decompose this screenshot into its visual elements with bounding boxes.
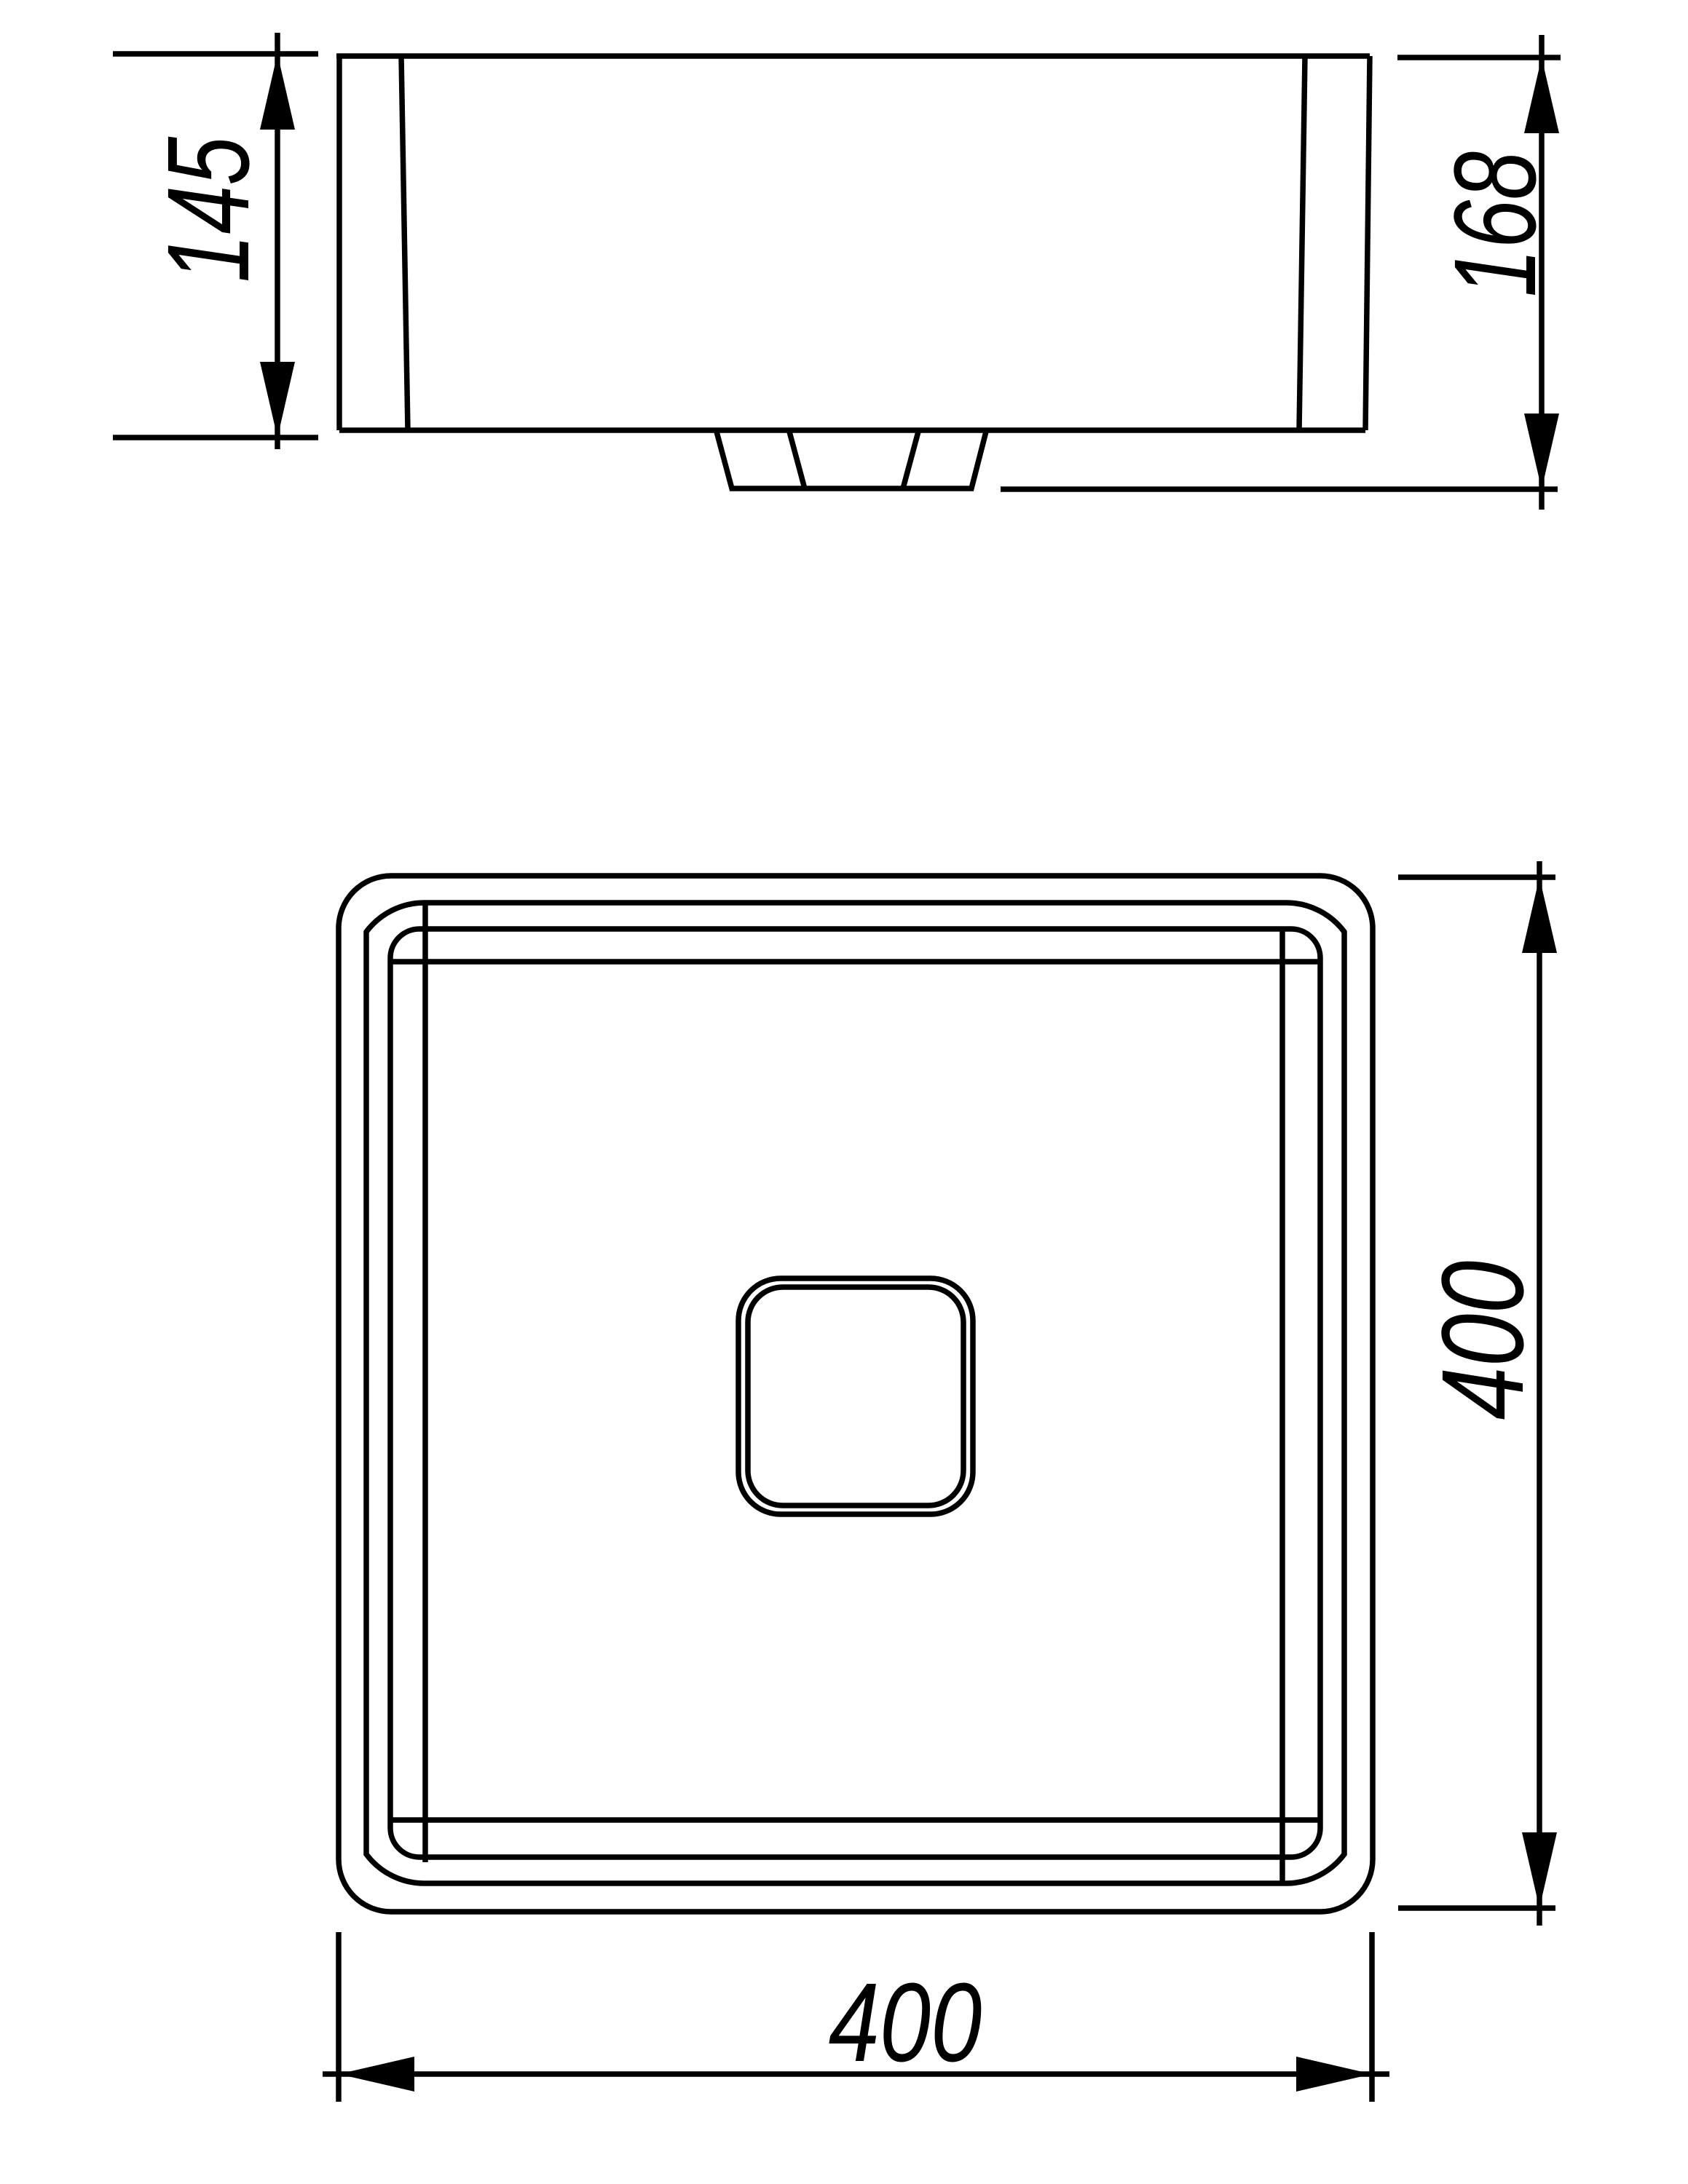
svg-text:400: 400 [829, 1960, 982, 2085]
svg-text:400: 400 [1419, 1261, 1548, 1420]
svg-text:145: 145 [143, 137, 273, 282]
svg-text:168: 168 [1429, 151, 1560, 297]
